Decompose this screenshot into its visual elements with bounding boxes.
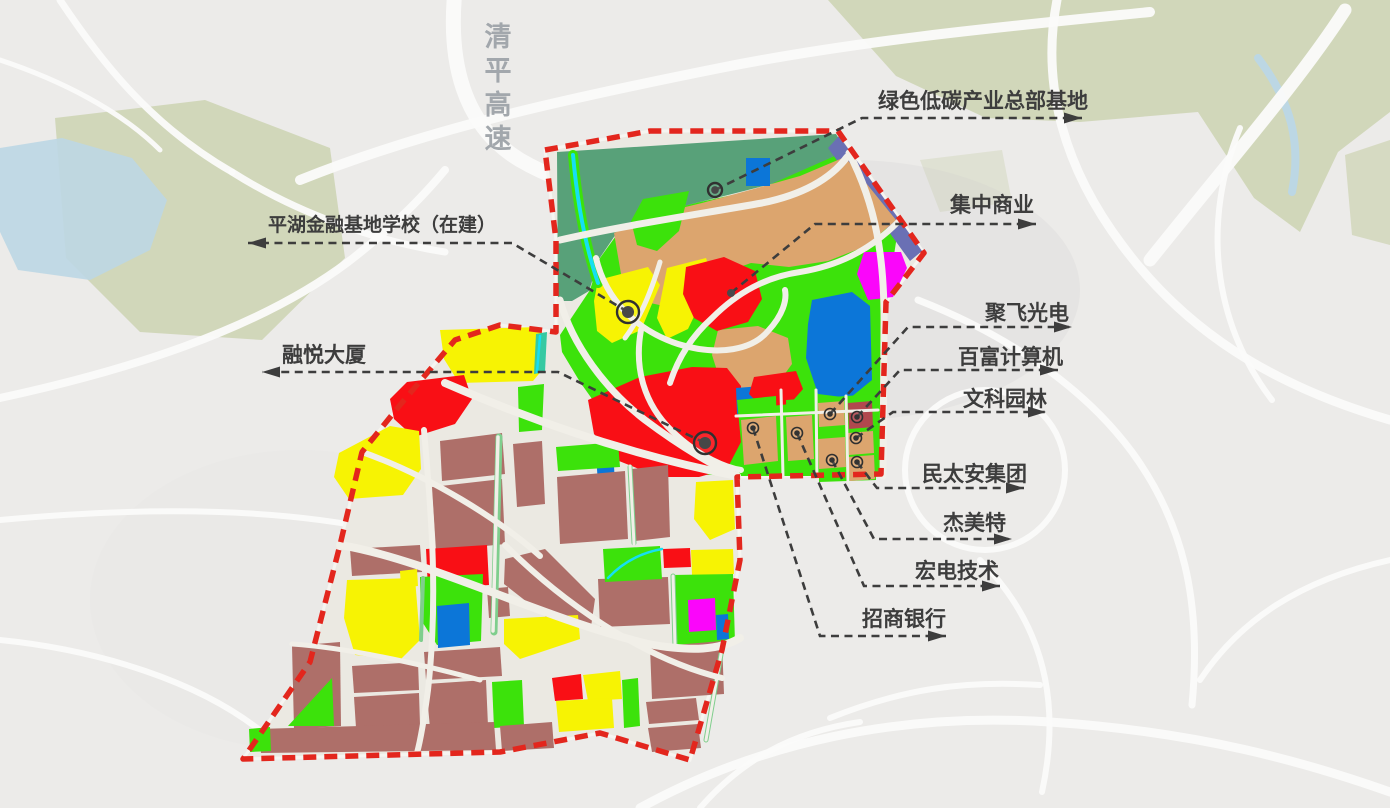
plan-road: [673, 576, 675, 647]
annotation-label-school: 平湖金融基地学校（在建）: [268, 213, 496, 236]
map-marker-dot: [827, 411, 833, 417]
annotation-label-zhaoshang: 招商银行: [862, 607, 946, 631]
annotation-label-central-commerce: 集中商业: [949, 193, 1034, 217]
zone-yellow: [691, 549, 734, 575]
annotation-label-jiemeite: 杰美特: [943, 511, 1006, 535]
map-marker-dot: [727, 289, 735, 297]
zone-yellow: [440, 327, 546, 383]
zone-tan: [741, 416, 778, 465]
plan-road: [781, 390, 783, 476]
zone-brown: [632, 465, 670, 541]
zone-brown: [354, 693, 420, 728]
map-marker-dot: [750, 425, 756, 431]
zone-yellow: [344, 578, 420, 660]
zone-magenta: [688, 598, 716, 632]
basemap-park: [1345, 140, 1390, 245]
zone-brown: [500, 722, 554, 751]
map-marker-dot: [854, 459, 860, 465]
map-marker-dot: [699, 437, 711, 449]
map-marker-dot: [711, 186, 719, 194]
annotation-label-jufei: 聚飞光电: [984, 302, 1069, 325]
zone-blue: [746, 158, 770, 186]
annotation-label-rongyue: 融悦大厦: [282, 343, 366, 367]
map-marker-dot: [853, 435, 859, 441]
map-marker-dot: [854, 414, 860, 420]
zone-red: [663, 548, 691, 568]
zone-brown: [646, 698, 699, 724]
zone-brown: [426, 680, 488, 728]
annotation-label-baifu: 百富计算机: [958, 345, 1063, 369]
zone-brown: [513, 441, 545, 507]
zone-yellow: [583, 671, 622, 701]
map-marker-dot: [829, 457, 835, 463]
map-marker-dot: [622, 306, 634, 318]
zone-yellow: [556, 698, 614, 732]
annotation-label-wenke: 文科园林: [963, 387, 1047, 411]
plan-road: [816, 390, 817, 480]
plan-road: [846, 396, 848, 482]
planning-map: 绿色低碳产业总部基地集中商业平湖金融基地学校（在建）融悦大厦聚飞光电百富计算机文…: [0, 0, 1390, 808]
zone-brown: [352, 662, 419, 693]
street-green-strip: [421, 578, 423, 640]
zone-brown: [557, 471, 628, 544]
zone-brown: [598, 577, 670, 627]
planning-map-screenshot: 绿色低碳产业总部基地集中商业平湖金融基地学校（在建）融悦大厦聚飞光电百富计算机文…: [0, 0, 1390, 808]
annotation-label-mintaian: 民太安集团: [922, 462, 1027, 486]
map-marker-dot: [794, 430, 800, 436]
annotation-label-hongdian: 宏电技术: [915, 559, 999, 583]
zone-green: [622, 678, 640, 728]
zone-green: [492, 680, 524, 728]
zone-red: [552, 674, 583, 701]
zone-blue: [437, 603, 470, 648]
zone-blue: [806, 292, 872, 398]
annotation-label-green-base: 绿色低碳产业总部基地: [878, 89, 1088, 113]
